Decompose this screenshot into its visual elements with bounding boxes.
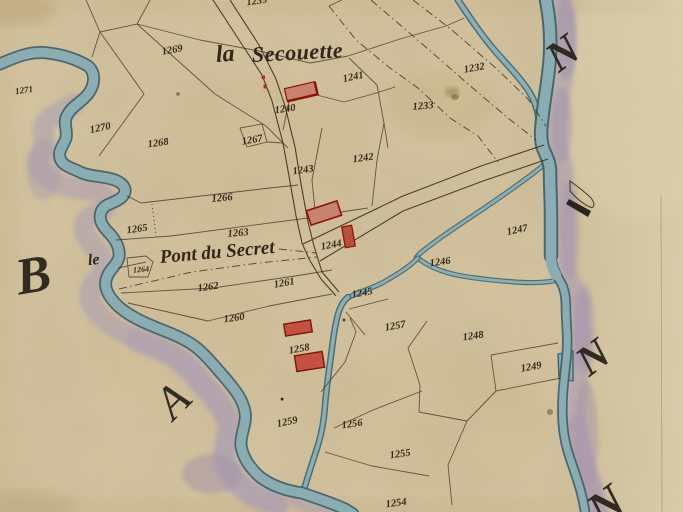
svg-text:1266: 1266 xyxy=(211,192,234,205)
svg-text:le: le xyxy=(87,251,100,269)
svg-text:la: la xyxy=(215,41,235,68)
svg-text:Secouette: Secouette xyxy=(251,37,343,67)
svg-text:1264: 1264 xyxy=(133,264,150,274)
svg-text:1263: 1263 xyxy=(227,227,249,240)
svg-text:1233: 1233 xyxy=(412,100,434,113)
